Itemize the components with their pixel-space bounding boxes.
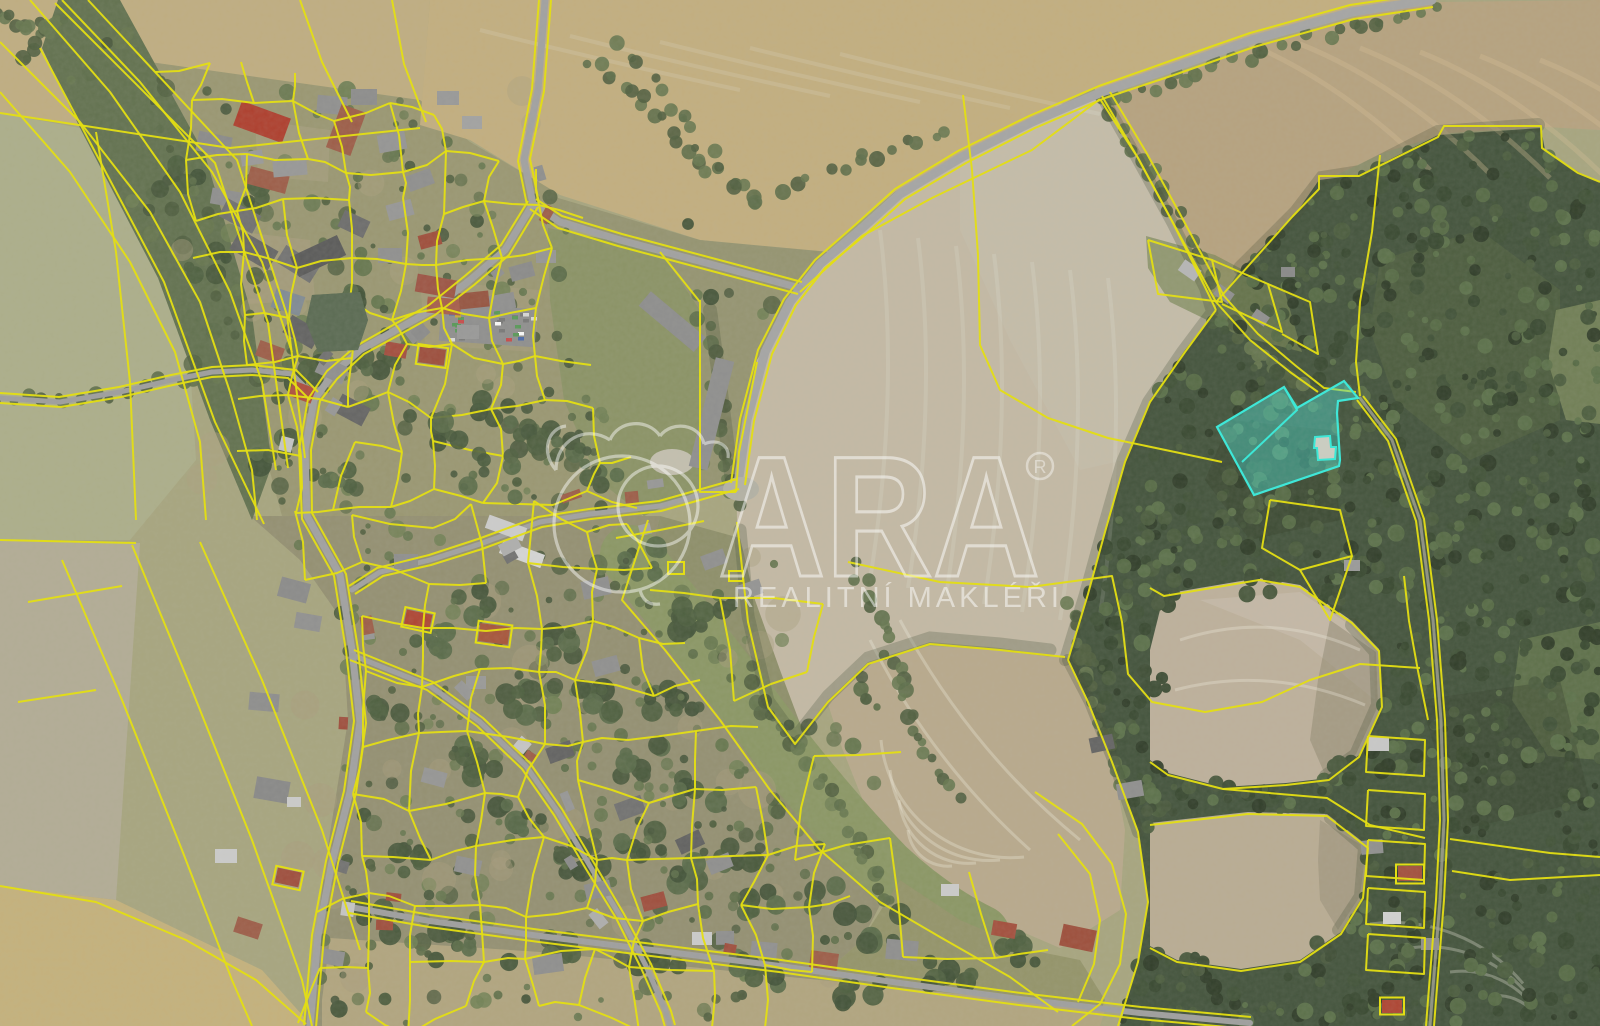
svg-text:R: R: [1034, 457, 1047, 477]
svg-text:REALITNÍ MAKLÉŘI: REALITNÍ MAKLÉŘI: [733, 581, 1063, 614]
